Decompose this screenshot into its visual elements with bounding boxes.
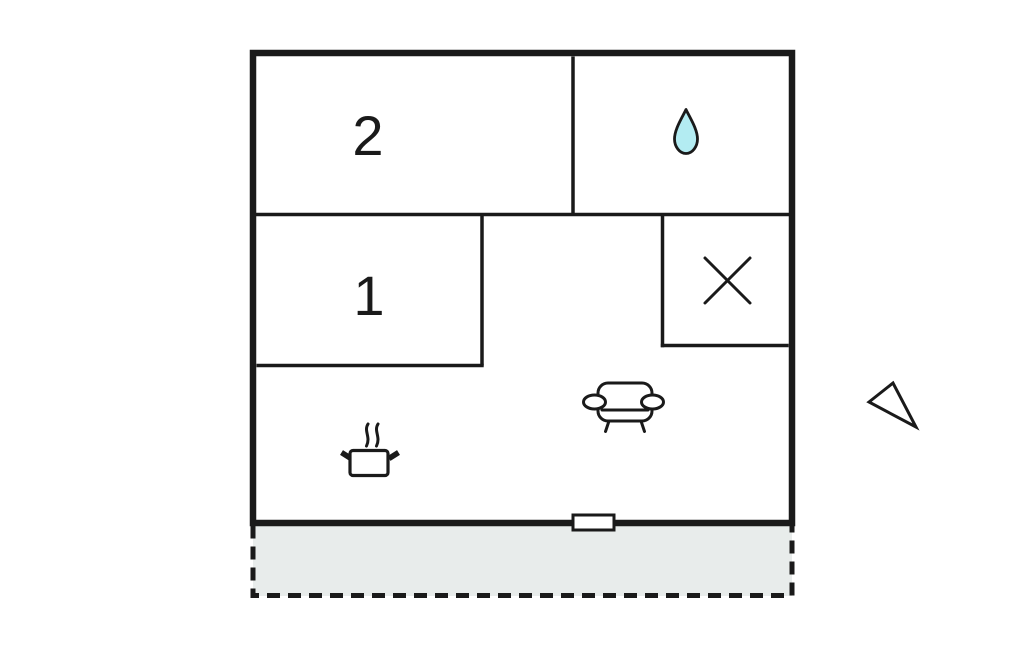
floor-plan: 2 1 — [0, 0, 1024, 652]
room-1-label: 1 — [353, 264, 384, 327]
building-outline — [253, 53, 792, 523]
door-marker — [573, 515, 614, 530]
floor-plan-canvas: 2 1 — [0, 0, 1024, 652]
north-arrow-icon — [869, 383, 916, 427]
room-2-label: 2 — [352, 104, 383, 167]
terrace-area — [253, 524, 792, 596]
